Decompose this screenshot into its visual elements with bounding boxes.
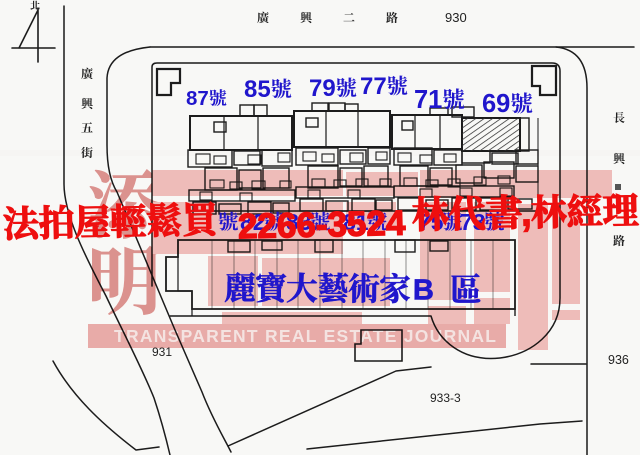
svg-text:85: 85 [244, 76, 271, 103]
svg-text:,: , [520, 190, 532, 234]
svg-text:2266-3524: 2266-3524 [238, 204, 407, 247]
svg-text:79: 79 [309, 75, 336, 102]
svg-text:71: 71 [414, 86, 442, 114]
svg-text:933-3: 933-3 [430, 391, 461, 405]
svg-text:930: 930 [445, 10, 467, 25]
svg-text:69: 69 [482, 90, 510, 118]
svg-text:TRANSPARENT REAL ESTATE JOURNA: TRANSPARENT REAL ESTATE JOURNAL [114, 326, 496, 346]
svg-text:87: 87 [186, 87, 209, 110]
svg-text:B: B [413, 274, 434, 306]
svg-text:936: 936 [608, 353, 629, 367]
svg-text:77: 77 [360, 73, 387, 100]
